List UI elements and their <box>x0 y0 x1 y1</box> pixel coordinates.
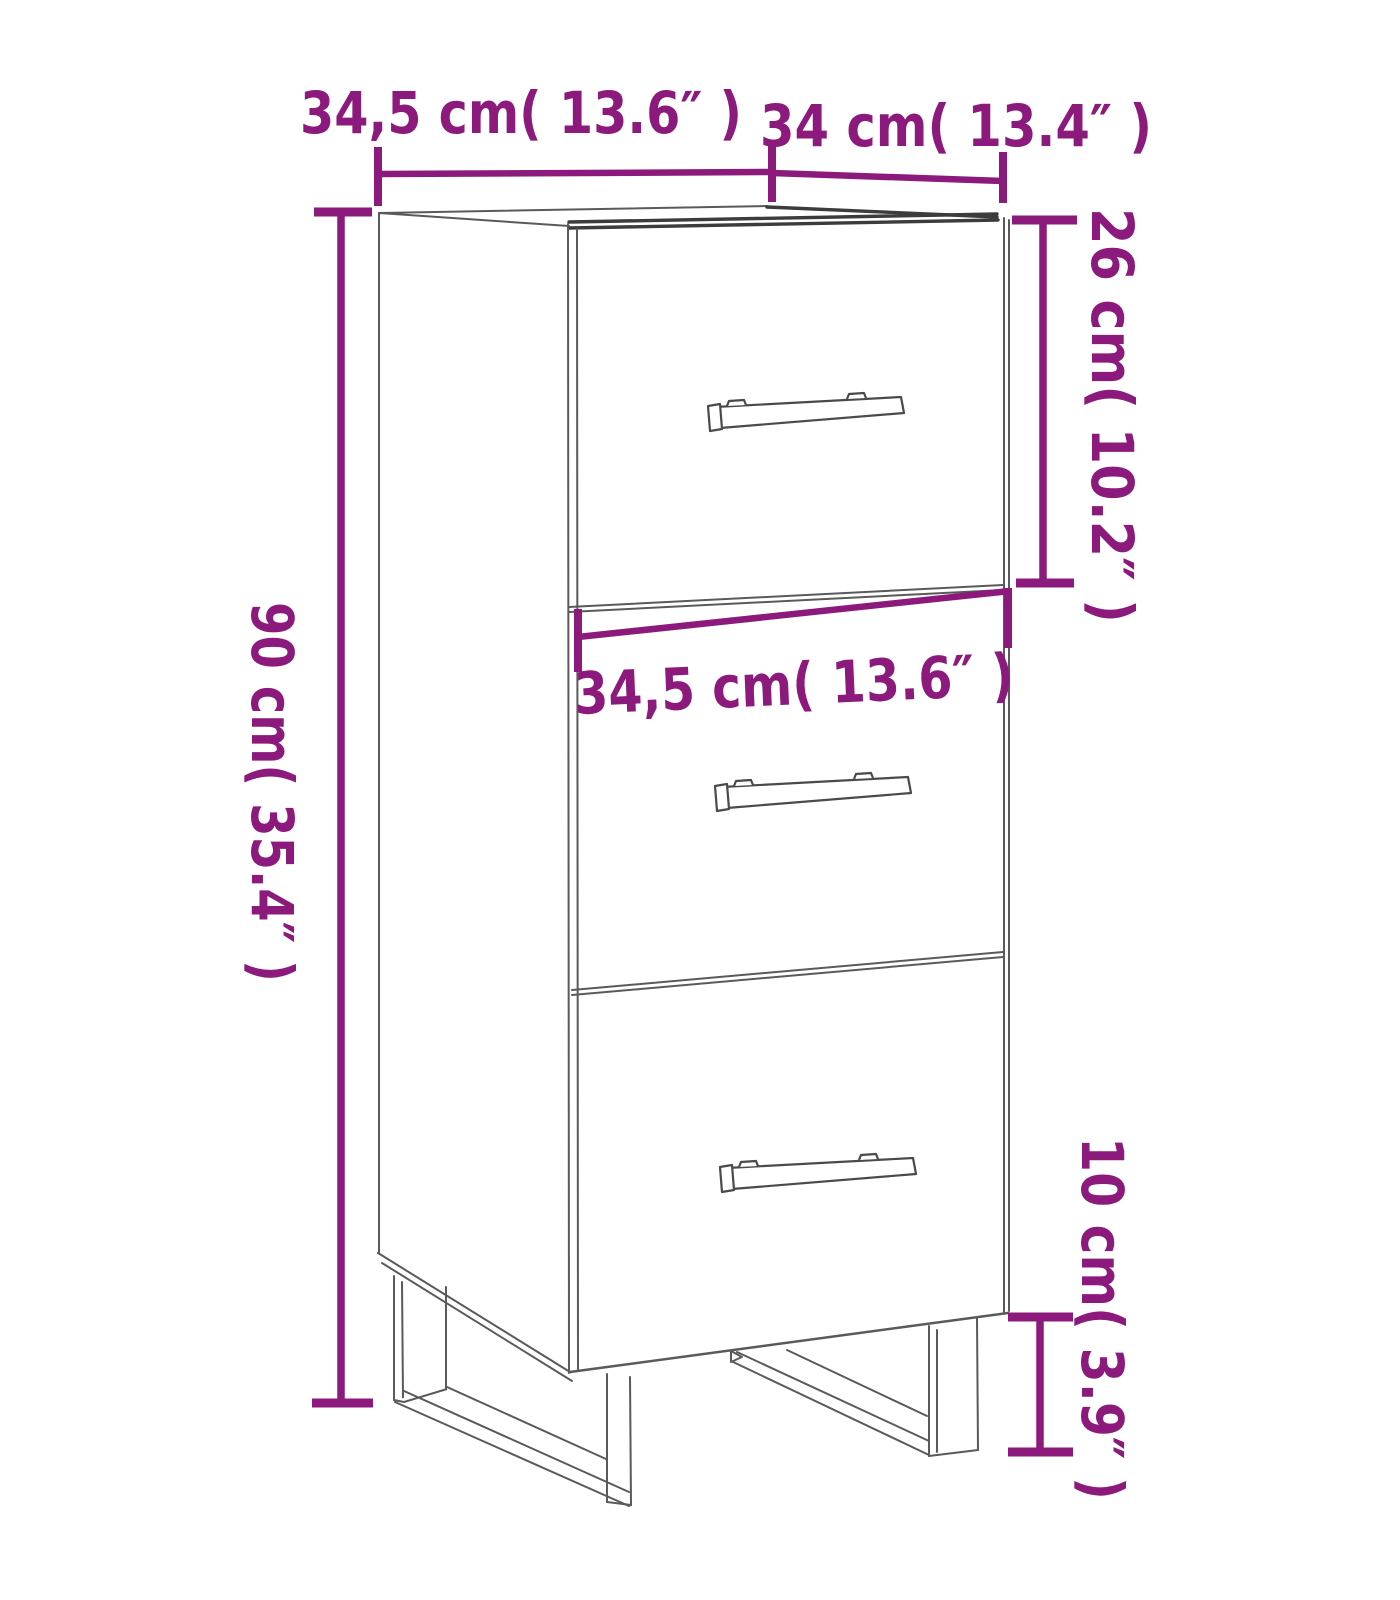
sideboard-dimension-diagram: 34,5 cm( 13.6″ ) 34 cm( 13.4″ ) 26 cm( 1… <box>0 0 1400 1600</box>
dim-label-middle-width: 34,5 cm( 13.6″ ) <box>573 641 1016 728</box>
dim-label-total-height: 90 cm( 35.4″ ) <box>238 602 306 982</box>
drawer-handle-3 <box>720 1154 916 1192</box>
dim-label-top-width: 34,5 cm( 13.6″ ) <box>300 79 742 147</box>
top-face <box>379 206 998 228</box>
side-edges <box>379 214 1009 1373</box>
dim-top-width: 34,5 cm( 13.6″ ) <box>300 79 772 206</box>
dim-label-top-depth: 34 cm( 13.4″ ) <box>760 92 1152 160</box>
dim-top-depth: 34 cm( 13.4″ ) <box>760 92 1152 203</box>
dim-leg-height: 10 cm( 3.9″ ) <box>1008 1137 1136 1500</box>
dim-total-height: 90 cm( 35.4″ ) <box>238 212 373 1403</box>
right-leg <box>731 1318 978 1456</box>
dimension-diagram-page: 34,5 cm( 13.6″ ) 34 cm( 13.4″ ) 26 cm( 1… <box>0 0 1400 1600</box>
drawer-separator-2 <box>572 952 1003 995</box>
drawer-handle-1 <box>708 393 904 431</box>
drawer-handle-2 <box>715 773 911 811</box>
dim-label-drawer-height: 26 cm( 10.2″ ) <box>1078 208 1146 623</box>
dim-drawer-height: 26 cm( 10.2″ ) <box>1012 208 1146 623</box>
left-leg <box>394 1276 631 1506</box>
dim-label-leg-height: 10 cm( 3.9″ ) <box>1068 1137 1136 1500</box>
bottom-edges <box>378 1253 1008 1381</box>
cabinet-outline <box>378 206 1009 1506</box>
